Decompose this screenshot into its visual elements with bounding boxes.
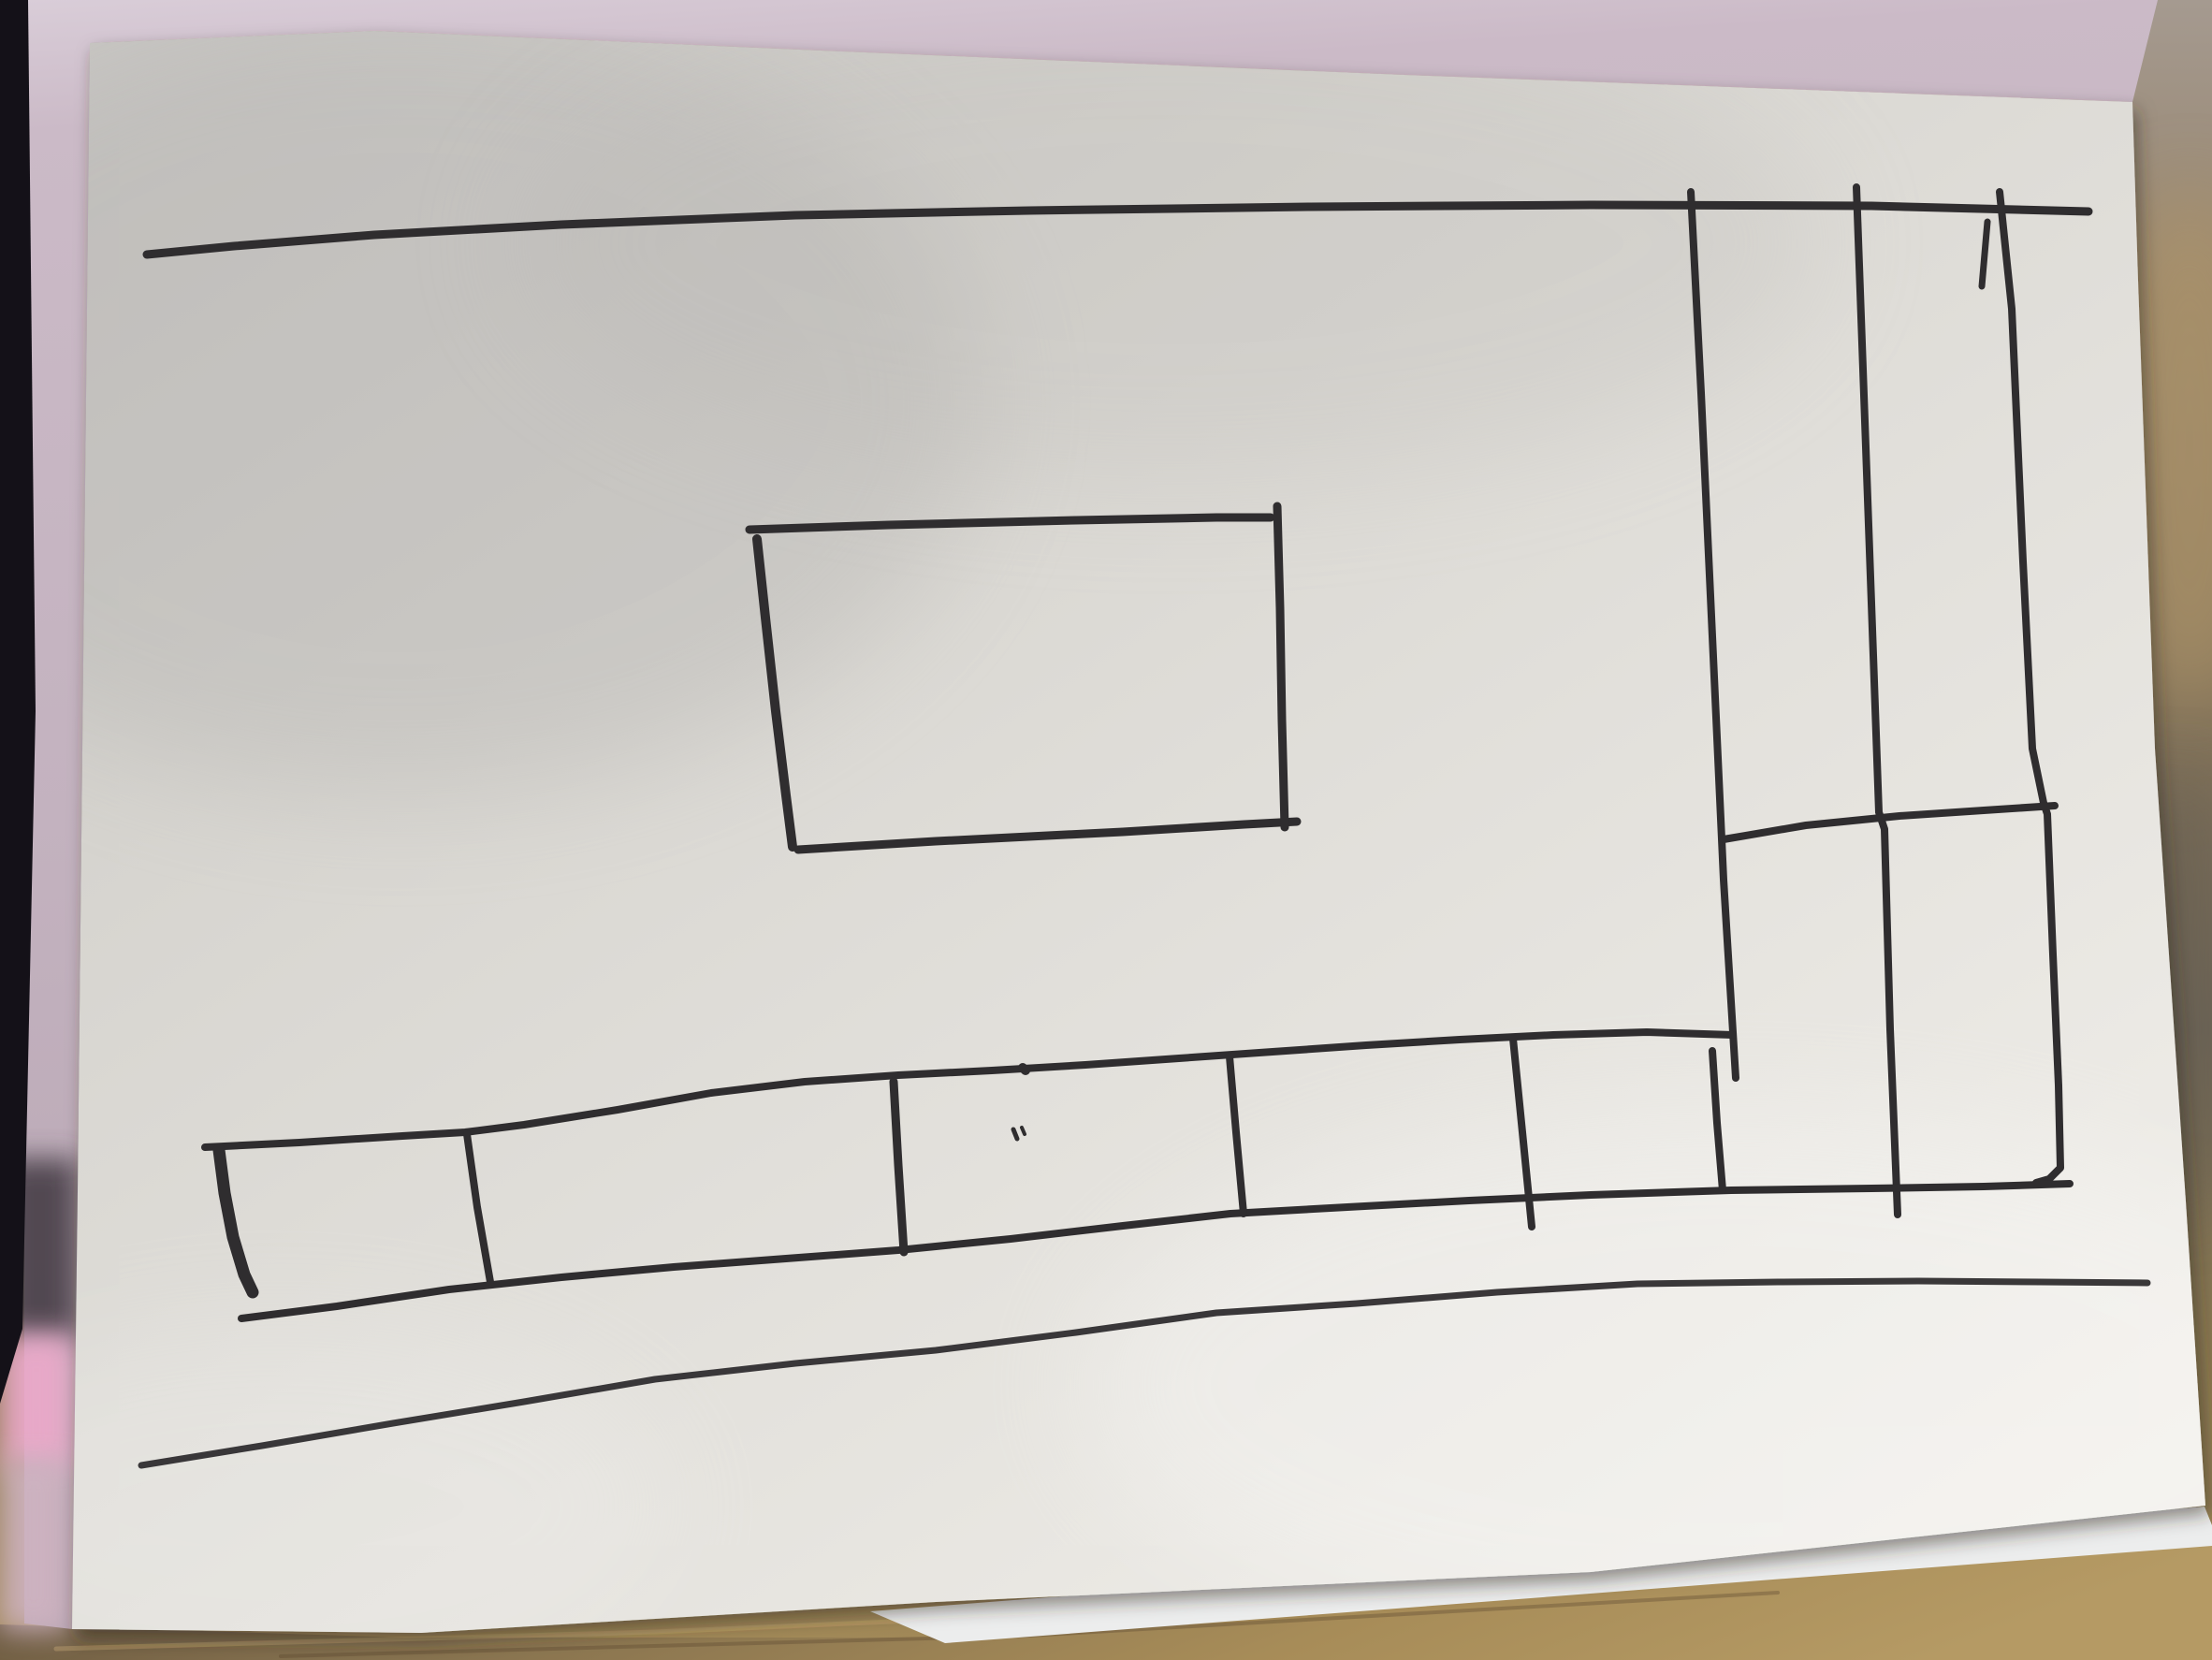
photo-scene — [0, 0, 2212, 1660]
ink-mark-b — [1022, 1128, 1025, 1134]
folder-muted-pink-patch — [0, 1458, 67, 1631]
sketch-photo — [0, 0, 2212, 1660]
ink-dot-on-shelf-line — [1023, 1068, 1026, 1070]
